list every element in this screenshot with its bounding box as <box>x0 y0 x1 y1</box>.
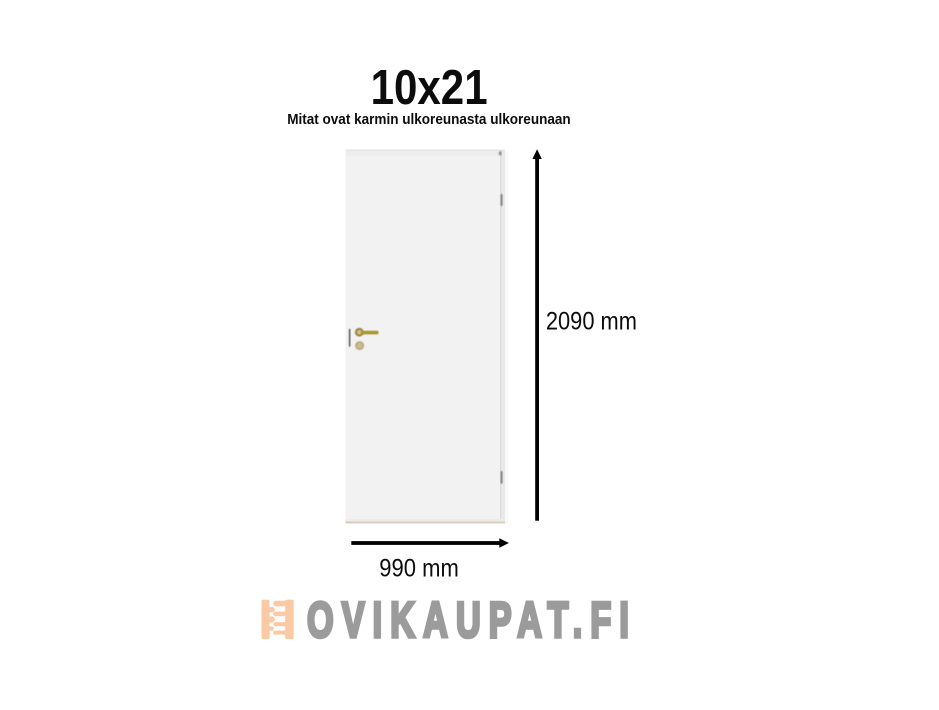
svg-text:990 mm: 990 mm <box>379 555 459 583</box>
svg-text:10x21: 10x21 <box>371 60 488 115</box>
svg-text:2090 mm: 2090 mm <box>546 308 637 336</box>
svg-text:Mitat ovat karmin ulkoreunasta: Mitat ovat karmin ulkoreunasta ulkoreuna… <box>287 112 571 128</box>
svg-text:OVIKAUPAT.FI: OVIKAUPAT.FI <box>307 591 637 648</box>
